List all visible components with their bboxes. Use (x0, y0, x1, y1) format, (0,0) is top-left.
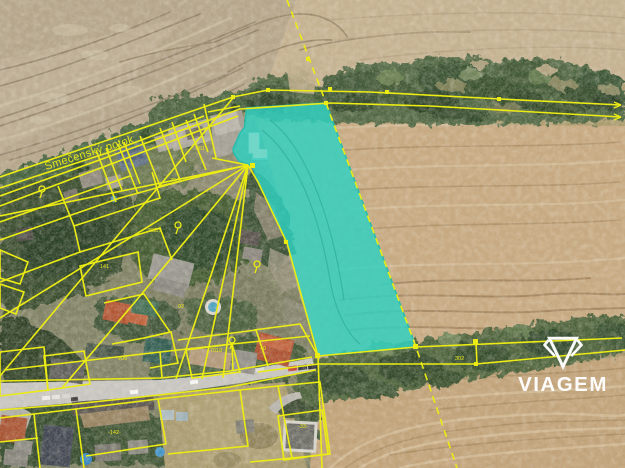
svg-text:302/5: 302/5 (148, 228, 162, 234)
svg-text:-33-: -33- (298, 424, 308, 430)
svg-text:VIAGEM: VIAGEM (518, 373, 608, 396)
svg-text:141: 141 (100, 264, 109, 270)
svg-text:76/2: 76/2 (170, 178, 181, 184)
svg-text:7018: 7018 (210, 348, 222, 354)
svg-text:302: 302 (455, 356, 464, 362)
svg-text:-142-: -142- (108, 430, 121, 436)
svg-text:40: 40 (260, 346, 266, 352)
svg-text:92: 92 (178, 304, 184, 310)
svg-text:206: 206 (118, 356, 127, 362)
svg-text:301: 301 (196, 146, 205, 152)
